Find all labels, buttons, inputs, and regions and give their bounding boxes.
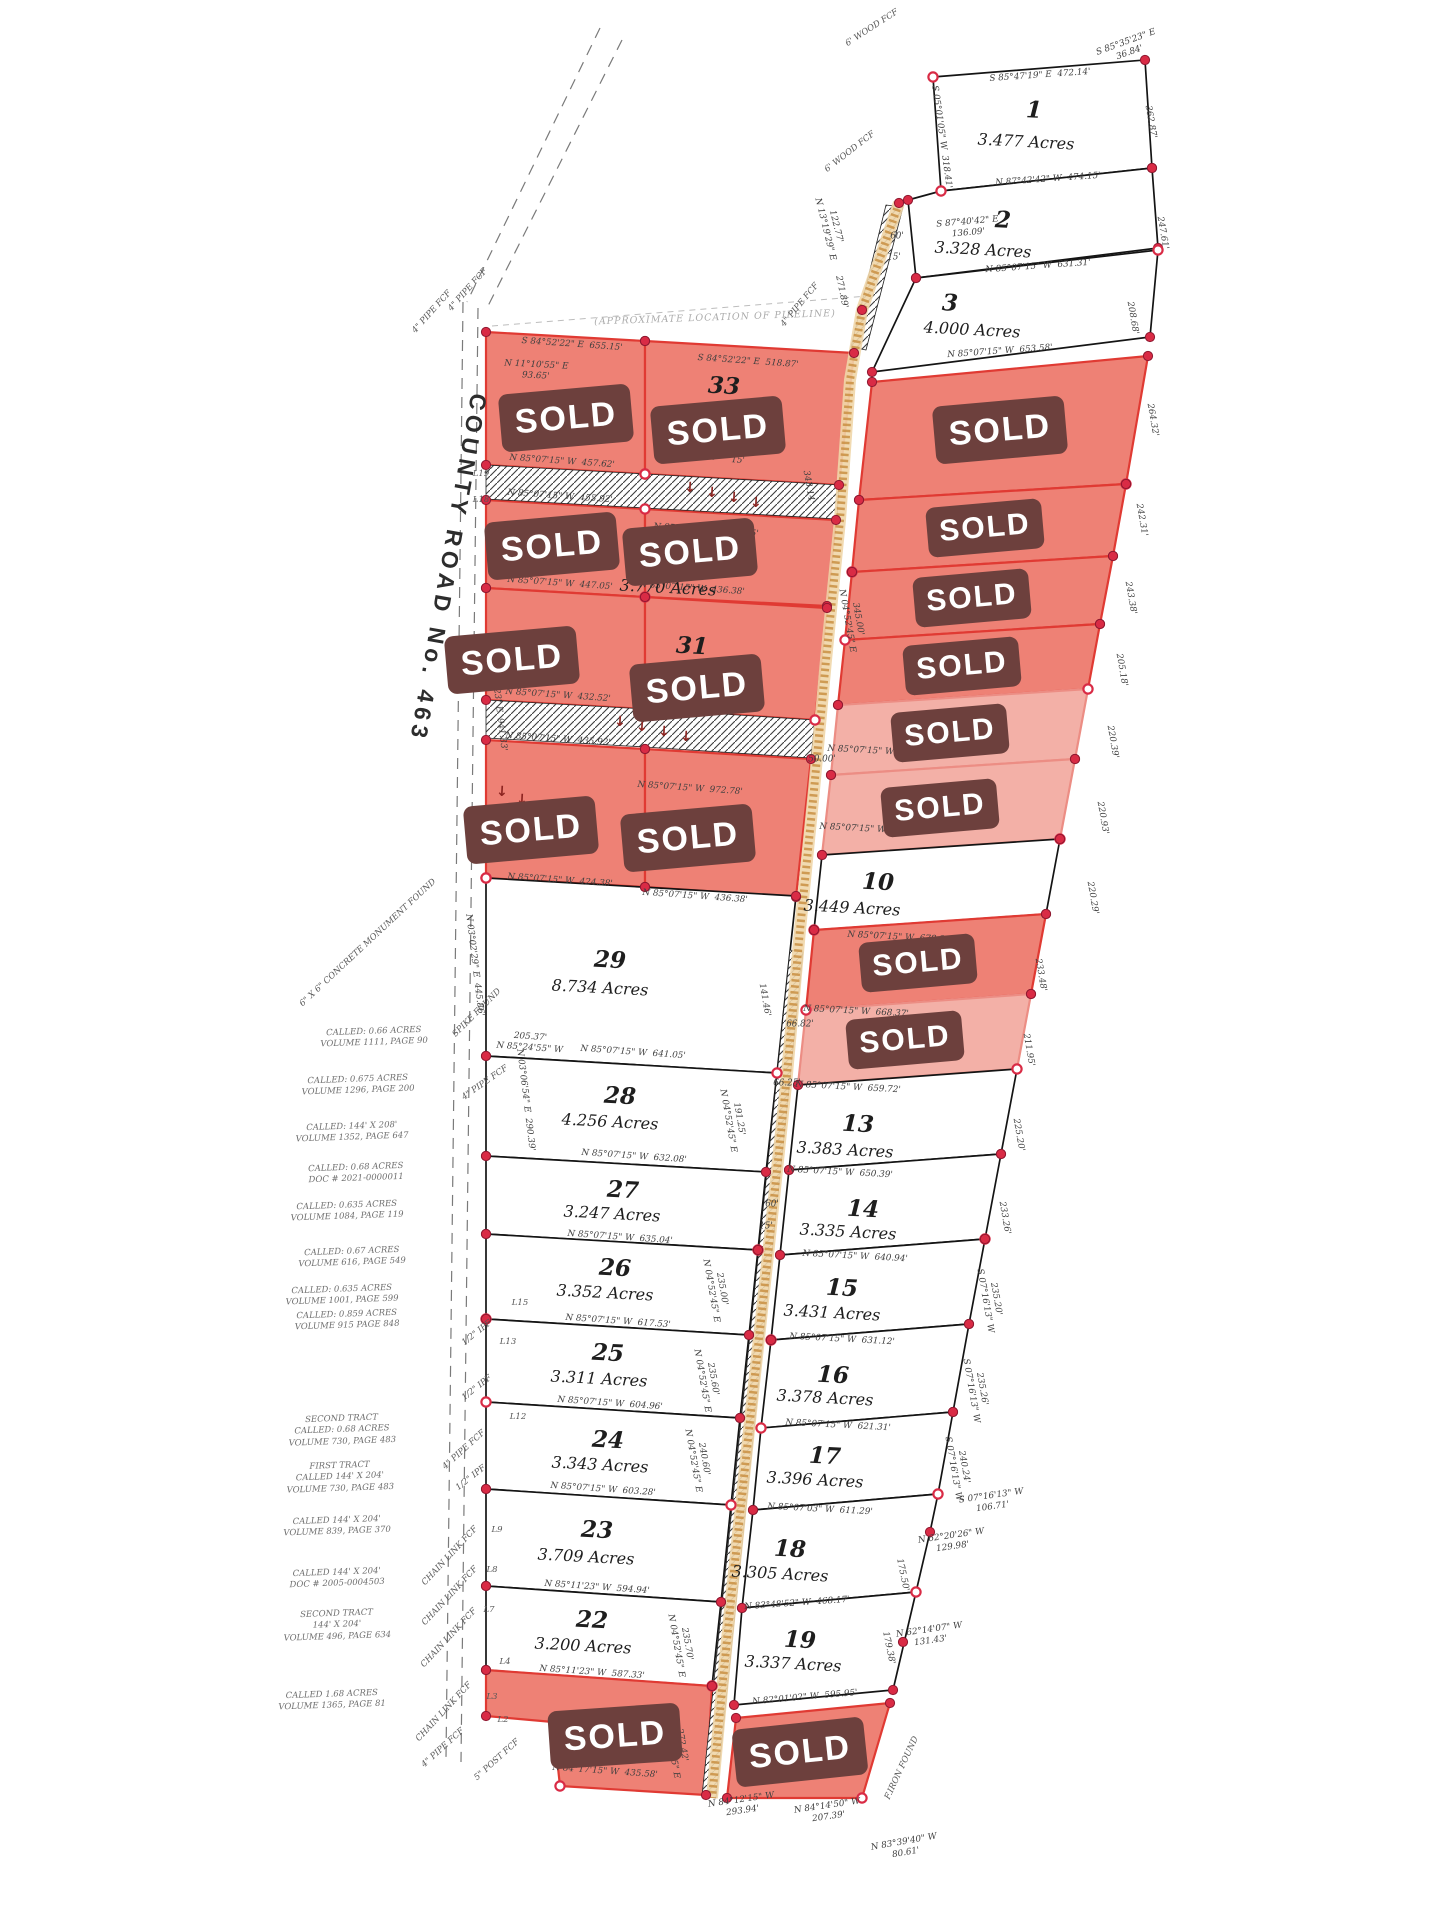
bearing-label: 235.00' N 04°52'45" E — [700, 1257, 733, 1324]
bearing-label: 240.24' S 07°16'13" W — [942, 1434, 975, 1502]
bearing-label: 122.77' N 13°19'29" E — [812, 194, 849, 262]
bearing-label: N 85°07'03" W 611.29' — [767, 1502, 873, 1518]
lot-number-29: 29 — [593, 948, 626, 973]
bearing-label: N 85°07'15" W 457.62' — [509, 453, 615, 471]
lot-acreage-29: 8.734 Acres — [551, 977, 648, 998]
bearing-label: 233.48' — [1032, 958, 1049, 993]
monument-label: L19 — [473, 469, 489, 479]
bearing-label: N 85°07'15" W 972.78' — [637, 780, 743, 798]
lot-acreage-2: 3.328 Acres — [934, 239, 1031, 260]
monument-label: 4" PIPE FCF — [410, 289, 454, 336]
lot-acreage-19: 3.337 Acres — [744, 1653, 841, 1674]
lot-number-33: 33 — [707, 374, 740, 399]
bearing-label: N 82°01'02" W 595.95' — [752, 1688, 858, 1708]
monument-label: L8 — [486, 1565, 497, 1575]
deed-note: CALLED: 0.635 ACRES VOLUME 1001, PAGE 59… — [285, 1283, 399, 1310]
lot-number-31: 31 — [675, 634, 708, 659]
deed-note: SECOND TRACT CALLED: 0.68 ACRES VOLUME 7… — [288, 1412, 397, 1450]
sold-badge-lot-4: SOLD — [932, 395, 1069, 464]
monument-label: 5" POST FCF — [472, 1737, 521, 1783]
monument-label: L13 — [500, 1337, 516, 1347]
bearing-label: 220.39' — [1104, 725, 1121, 760]
bearing-label: N 85°07'15" W 603.28' — [550, 1481, 656, 1499]
bearing-label: 240.60' N 04°52'45" E — [682, 1427, 715, 1494]
deed-note: SECOND TRACT 144' X 204' VOLUME 496, PAG… — [283, 1607, 392, 1645]
bearing-label: S 05°01'05" W 318.41' — [928, 85, 953, 189]
lot-number-17: 17 — [808, 1444, 841, 1469]
bearing-label: 242.31' — [1133, 503, 1150, 538]
bearing-label: N 85°11'23" W 594.94' — [544, 1579, 650, 1597]
bearing-label: S 84°52'22" E 655.15' — [521, 336, 623, 354]
sold-badge-lot-9: SOLD — [880, 778, 1000, 838]
bearing-label: 208.68' — [1124, 301, 1141, 336]
bearing-label: N 85°07'15" W 631.31' — [985, 258, 1091, 276]
lot-number-19: 19 — [783, 1628, 816, 1653]
bearing-label: 220.29' — [1084, 881, 1101, 916]
bearing-label: N 85°07'15" W 635.04' — [567, 1229, 673, 1247]
bearing-label: 235.60' N 04°52'45" E — [691, 1347, 724, 1414]
bearing-label: N 85°07'15" W 632.08' — [581, 1148, 687, 1166]
sold-badge-lot-s1: SOLD — [498, 383, 635, 452]
bearing-label: N 85°07'15" W 631.12' — [789, 1332, 895, 1348]
lot-number-27: 27 — [606, 1178, 639, 1203]
bearing-label: N 62°20'26" W 129.98' — [917, 1526, 986, 1557]
sold-badge-lot-s8: SOLD — [731, 1716, 868, 1787]
monument-label: 4" PIPE FCF — [446, 267, 490, 314]
easement-arrow-icon: ↓ — [496, 785, 508, 800]
deed-note: CALLED: 144' X 208' VOLUME 1352, PAGE 64… — [295, 1120, 409, 1147]
bearing-label: N 85°11'23" W 587.33' — [539, 1664, 645, 1682]
lot-acreage-3: 4.000 Acres — [923, 319, 1020, 340]
bearing-label: 15' — [887, 253, 901, 264]
deed-note: CALLED: 0.675 ACRES VOLUME 1296, PAGE 20… — [301, 1073, 415, 1100]
bearing-label: N 87°42'42" W 474.15' — [995, 171, 1101, 189]
bearing-label: N 85°07'15" W 604.96' — [557, 1395, 663, 1413]
bearing-label: 50.00' — [808, 755, 836, 766]
bearing-label: N 85°07'15" W 617.53' — [565, 1313, 671, 1331]
sold-badge-lot-s5: SOLD — [463, 795, 600, 864]
bearing-label: N 84°12'15" W 293.94' — [707, 1790, 776, 1821]
lot-acreage-13: 3.383 Acres — [796, 1139, 893, 1160]
lot-acreage-1: 3.477 Acres — [977, 131, 1074, 152]
sold-badge-lot-s6: SOLD — [620, 803, 757, 872]
lot-acreage-27: 3.247 Acres — [563, 1203, 660, 1224]
bearing-label: N 03°06'54" E 290.39' — [513, 1048, 536, 1152]
monument-label: L4 — [499, 1657, 510, 1667]
bearing-label: N 83°39'40" W 80.61' — [870, 1831, 940, 1864]
lot-acreage-26: 3.352 Acres — [556, 1282, 653, 1303]
bearing-label: N 85°07'15" W 436.38' — [642, 888, 748, 906]
bearing-label: 66.82' — [786, 1020, 814, 1031]
monument-label: L12 — [510, 1412, 526, 1422]
bearing-label: 247.61' — [1154, 216, 1171, 251]
lot-number-16: 16 — [816, 1363, 849, 1388]
monument-label: L18 — [473, 495, 489, 505]
monument-label: 1/2" IPF — [460, 1318, 494, 1348]
bearing-label: 343.14' — [800, 470, 817, 505]
lot-number-10: 10 — [861, 870, 894, 895]
lot-acreage-10: 3.449 Acres — [803, 897, 900, 918]
bearing-label: 205.37' N 85°24'55" W — [496, 1030, 564, 1057]
deed-note: CALLED: 0.68 ACRES DOC # 2021-0000011 — [308, 1161, 404, 1187]
sold-badge-lot-33: SOLD — [650, 395, 787, 464]
monument-label: L3 — [486, 1692, 497, 1702]
bearing-label: N 85°07'15" W 650.39' — [787, 1165, 893, 1181]
bearing-label: N 85°07'15" W 432.52' — [505, 687, 611, 705]
lot-number-1: 1 — [1025, 98, 1042, 122]
easement-arrow-icon: ↓ — [706, 486, 718, 501]
monument-label: L9 — [491, 1525, 502, 1535]
bearing-label: 271.89' — [832, 275, 850, 310]
lot-acreage-15: 3.431 Acres — [783, 1302, 880, 1323]
plat-map: COUNTY ROAD No. 463 (APPROXIMATE LOCATIO… — [0, 0, 1450, 1920]
bearing-label: 345.00' N 04°52'45" E — [836, 587, 869, 654]
lot-number-14: 14 — [846, 1197, 879, 1222]
bearing-label: 175.50' — [893, 1558, 911, 1593]
lot-number-3: 3 — [941, 291, 958, 315]
lot-number-2: 2 — [994, 208, 1011, 232]
bearing-label: N 11°10'55" E 93.65' — [503, 358, 568, 383]
bearing-label: N 85°07'15" W 653.58' — [947, 343, 1053, 361]
easement-arrow-icon: ↓ — [680, 730, 692, 745]
sold-badge-lot-5: SOLD — [925, 498, 1045, 558]
bearing-label: N 85°07'15" W 424.38' — [507, 872, 613, 890]
deed-note: CALLED 144' X 204' VOLUME 839, PAGE 370 — [283, 1514, 391, 1541]
bearing-label: 235.20' S 07°16'13" W — [974, 1266, 1007, 1334]
monument-label: 4" PIPE FCF — [460, 1063, 510, 1102]
lot-acreage-18: 3.305 Acres — [731, 1563, 828, 1584]
deed-note: CALLED 144' X 204' DOC # 2005-0004503 — [289, 1566, 385, 1592]
deed-note: FIRST TRACT CALLED 144' X 204' VOLUME 73… — [286, 1459, 395, 1497]
easement-arrow-icon: ↓ — [684, 481, 696, 496]
monument-label: 6' WOOD FCF — [823, 129, 877, 175]
bearing-label: 60' — [890, 232, 904, 243]
lot-number-28: 28 — [603, 1084, 636, 1109]
bearing-label: S 85°47'19" E 472.14' — [989, 67, 1091, 85]
lot-number-23: 23 — [580, 1518, 613, 1543]
sold-badge-lot-11: SOLD — [858, 933, 978, 993]
bearing-label: 220.93' — [1094, 801, 1111, 836]
lot-acreage-24: 3.343 Acres — [551, 1454, 648, 1475]
monument-label: 1/2" IPF — [454, 1463, 488, 1493]
monument-label: L7 — [483, 1605, 494, 1615]
lot-acreage-16: 3.378 Acres — [776, 1387, 873, 1408]
bearing-label: N 84°14'50" W 207.39' — [793, 1796, 862, 1827]
monument-label: 1/2" IPF — [460, 1373, 494, 1403]
lot-number-22: 22 — [575, 1608, 608, 1633]
sold-badge-lot-12: SOLD — [845, 1010, 965, 1070]
bearing-label: 15' — [759, 1222, 773, 1233]
bearing-label: 191.25' N 04°52'45" E — [717, 1087, 750, 1154]
bearing-label: 179.38' — [879, 1631, 897, 1666]
lot-acreage-28: 4.256 Acres — [561, 1111, 658, 1132]
lot-number-15: 15 — [825, 1276, 858, 1301]
lot-acreage-22: 3.200 Acres — [534, 1635, 631, 1656]
deed-note: CALLED: 0.67 ACRES VOLUME 616, PAGE 549 — [298, 1245, 406, 1272]
bearing-label: 243.38' — [1122, 581, 1139, 616]
sold-badge-lot-s3: SOLD — [622, 517, 759, 586]
lot-number-25: 25 — [591, 1341, 624, 1366]
easement-arrow-icon: ↓ — [614, 715, 626, 730]
bearing-label: N 62°14'07" W 131.43' — [895, 1620, 964, 1651]
bearing-label: S 84°52'22" E 518.87' — [697, 353, 799, 371]
sold-badge-lot-8: SOLD — [890, 703, 1010, 763]
deed-note: CALLED: 0.859 ACRES VOLUME 915 PAGE 848 — [294, 1308, 400, 1335]
bearing-label: N 85°07'15" W 641.05' — [580, 1044, 686, 1062]
bearing-label: N 85°07'15" W 435.92' — [505, 731, 611, 749]
lot-number-18: 18 — [773, 1537, 806, 1562]
bearing-label: N 85°07'15" W 621.31' — [785, 1418, 891, 1434]
bearing-label: S 85°35'23" E 36.84' — [1095, 27, 1161, 69]
monument-label: F.IRON FOUND — [883, 1735, 921, 1801]
sold-badge-lot-31: SOLD — [629, 653, 766, 722]
easement-arrow-icon: ↓ — [658, 725, 670, 740]
easement-arrow-icon: ↓ — [750, 496, 762, 511]
bearing-label: 211.95' — [1020, 1033, 1037, 1068]
lot-number-24: 24 — [591, 1428, 624, 1453]
bearing-label: 205.18' — [1113, 653, 1130, 688]
bearing-label: 141.46' — [756, 983, 773, 1018]
deed-note: CALLED: 0.635 ACRES VOLUME 1084, PAGE 11… — [290, 1199, 404, 1226]
bearing-label: 362.87' — [1142, 105, 1159, 140]
bearing-label: N 83°48'52" W 468.17' — [744, 1595, 850, 1613]
sold-badge-lot-s7: SOLD — [547, 1702, 683, 1769]
easement-arrow-icon: ↓ — [728, 491, 740, 506]
bearing-label: 60' — [765, 1200, 779, 1211]
lot-acreage-14: 3.335 Acres — [799, 1221, 896, 1242]
monument-label: 6" X 6" CONCRETE MONUMENT FOUND — [298, 877, 439, 1009]
bearing-label: 235.26' S 07°16'13" W — [960, 1356, 993, 1424]
lot-acreage-17: 3.396 Acres — [766, 1469, 863, 1490]
monument-label: L2 — [497, 1715, 508, 1725]
deed-note: CALLED 1.68 ACRES VOLUME 1365, PAGE 81 — [278, 1688, 386, 1715]
lot-acreage-23: 3.709 Acres — [537, 1546, 634, 1567]
bearing-label: N 85°07'15" W 640.94' — [802, 1249, 908, 1265]
bearing-label: N 85°07'15" W 455.92' — [507, 488, 613, 506]
lot-acreage-25: 3.311 Acres — [550, 1368, 647, 1389]
sold-badge-lot-6: SOLD — [912, 568, 1032, 628]
lot-number-26: 26 — [598, 1256, 631, 1281]
bearing-label: 233.26' — [996, 1201, 1013, 1236]
deed-note: CALLED: 0.66 ACRES VOLUME 1111, PAGE 90 — [320, 1025, 428, 1052]
plat-annotations: COUNTY ROAD No. 463 (APPROXIMATE LOCATIO… — [0, 0, 1450, 1920]
bearing-label: 235.70' N 04°52'45" E — [665, 1612, 698, 1679]
monument-label: 4" PIPE FCF — [779, 281, 822, 329]
bearing-label: N 85°07'15" W 659.72' — [795, 1080, 901, 1096]
sold-badge-lot-s2: SOLD — [484, 511, 621, 580]
lot-number-13: 13 — [841, 1112, 874, 1137]
bearing-label: 264.32' — [1144, 403, 1161, 438]
sold-badge-lot-7: SOLD — [902, 636, 1022, 696]
bearing-label: 225.20' — [1010, 1118, 1027, 1153]
monument-label: L15 — [512, 1298, 528, 1308]
sold-badge-lot-s4: SOLD — [444, 625, 581, 694]
monument-label: 6' WOOD FCF — [844, 7, 901, 49]
